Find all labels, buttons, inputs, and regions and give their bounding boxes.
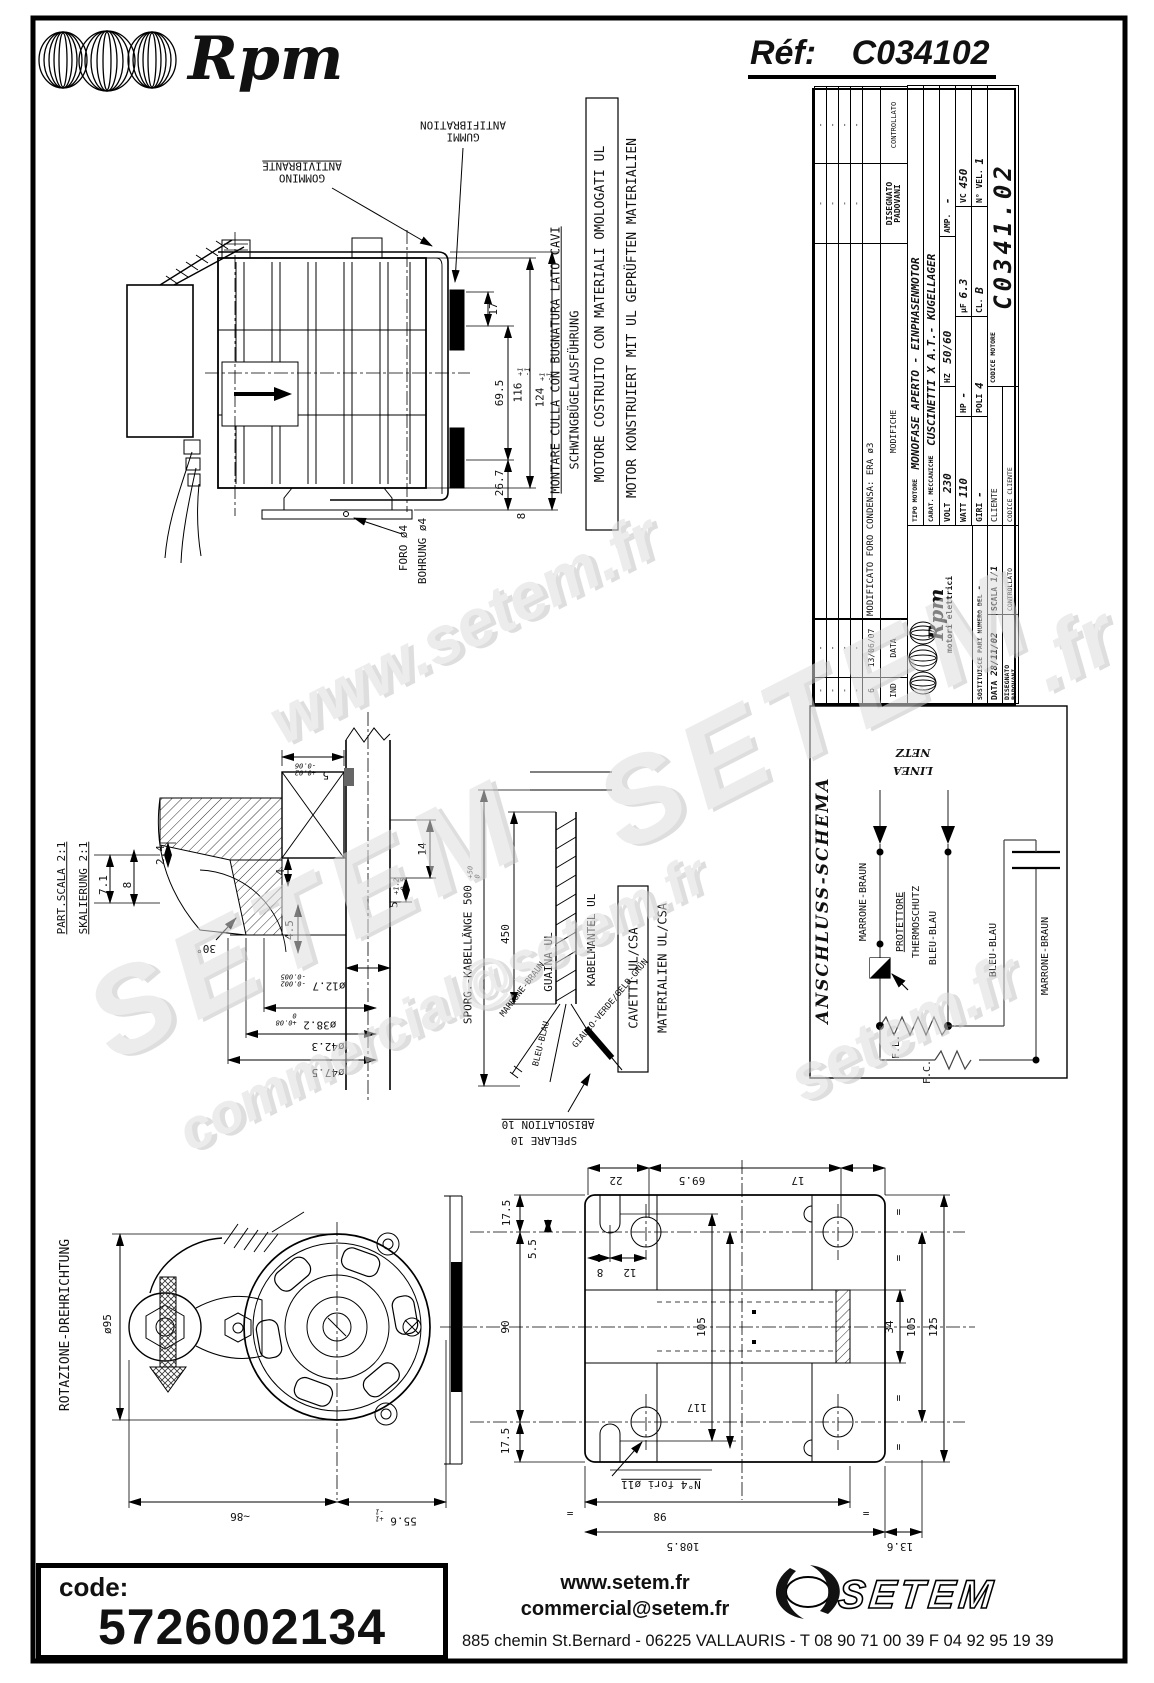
amp-value: -: [942, 197, 953, 204]
fl-label: F.L.: [892, 1035, 903, 1059]
hp-value: -: [958, 392, 969, 399]
dim-105-left: 105: [696, 1317, 708, 1337]
dim-7-1: 7.1: [98, 875, 110, 895]
netz-label: NETZ: [896, 746, 931, 758]
dim-12: 12: [623, 1266, 636, 1278]
dim-5-5: 5.5: [527, 1239, 539, 1259]
vc-label: VC: [960, 193, 968, 203]
setem-logo-text: SETEM: [836, 1573, 998, 1617]
col-data: DATA: [880, 618, 908, 678]
col-disegnato: DISEGNATOPADOVANI: [880, 163, 908, 244]
dim-2-4: 2.4: [155, 845, 167, 865]
fc-label: F.C.: [923, 1060, 934, 1084]
schwing-note: SCHWINGBÜGELAUSFÜHRUNG: [569, 311, 582, 470]
col-ind: IND: [880, 677, 908, 704]
mounting-plate-view: [440, 1160, 975, 1538]
dim-125: 125: [928, 1317, 940, 1337]
dim-98: 98: [653, 1510, 666, 1522]
rotation-direction-arrow: [160, 1277, 176, 1367]
dim-12-7: ø12.7 -0.002-0.005: [280, 973, 345, 992]
dim-117: 117: [687, 1401, 707, 1413]
dim-8b: 8: [122, 882, 134, 889]
tipo-value: MONOFASE APERTO - EINPHASENMOTOR: [910, 257, 921, 469]
vc-cell: VC 450: [955, 85, 972, 207]
foro-label: FORO ø4: [398, 525, 410, 571]
volt-cell: VOLT 230: [939, 386, 956, 526]
montare-note: MONTARE CULLA CON BUGNATURA LATO CAVI: [550, 226, 563, 493]
hz-cell: HZ 50/60: [939, 236, 956, 387]
rev-date: 13/06/07: [862, 618, 881, 678]
dim-17: 17: [488, 302, 500, 315]
nvel-label: N° VEL.: [976, 169, 984, 203]
skalierung-label: SKALIERUNG 2:1: [78, 842, 90, 935]
cl-cell: CL. B: [971, 206, 988, 317]
drawing-sheet: Rpm Réf: C034102 - - - - - - - - - - - -…: [0, 0, 1154, 1683]
vc-value: 450: [958, 169, 969, 189]
schema-bleu1: BLEU-BLAU: [929, 911, 940, 965]
equal-mark: =: [893, 1255, 905, 1262]
schema-marrone1: MARRONE-BRAUN: [859, 863, 870, 941]
dim-38-2: ø38.2 +0.080: [276, 1012, 337, 1031]
hz-value: 50/60: [942, 331, 953, 364]
dim-124: 124 +1-1: [535, 373, 554, 408]
disegnato-value2: PADOVANI: [1011, 669, 1018, 700]
tipo-label: TIPO MOTORE: [912, 479, 919, 522]
dim-4: 4: [275, 869, 287, 876]
rpm-subtitle: motori elettrici: [946, 576, 954, 653]
dim-116: 116 +1-1: [513, 368, 532, 403]
code-box: code: 5726002134: [36, 1563, 448, 1660]
equal-mark: =: [567, 1507, 574, 1519]
hp-label: HP: [960, 403, 968, 413]
dim-17b: 17: [791, 1174, 804, 1186]
dim-95: ø95: [102, 1314, 114, 1334]
sporg-label: SPORG.-KABELLÄNGE 500 +500: [463, 866, 482, 1024]
nvel-value: 1: [974, 158, 985, 165]
cl-label: CL.: [976, 299, 984, 313]
codice-motore-cell: CODICE MOTORE C0341.02: [987, 85, 1019, 387]
codice-cliente-cell: CODICE CLIENTE: [1002, 386, 1019, 526]
antivibrante-label: ANTIVIBRANTE: [262, 160, 341, 172]
nvel-cell: N° VEL. 1: [971, 85, 988, 207]
dim-5b: 5 +1.2-0.5: [389, 878, 408, 908]
watt-cell: WATT 110: [955, 416, 972, 526]
col-modifiche: MODIFICHE: [880, 243, 908, 620]
front-view: [112, 1212, 446, 1508]
dim-69-5b: 69.5: [679, 1174, 706, 1186]
rpm-block: Rpm motori elettrici: [907, 525, 973, 704]
sostituisce-value: -: [976, 585, 985, 590]
data-cell: DATA 28/11/02: [987, 614, 1003, 704]
dim-17-5-top: 17.5: [501, 1200, 513, 1227]
main-winding-fl: [880, 1017, 948, 1035]
uf-value: 6.3: [958, 279, 969, 299]
data-value: 28/11/02: [991, 633, 1000, 676]
equal-mark: =: [893, 1444, 905, 1451]
dim-8c: 8: [597, 1266, 604, 1278]
volt-label: VOLT: [944, 503, 952, 522]
ref-label: Réf:: [750, 34, 816, 72]
footer-email: commercial@setem.fr: [510, 1598, 740, 1621]
guaina-label: GUAINA UL: [543, 932, 555, 992]
carat-row: CARAT. MECCANICHE CUSCINETTI X A.T.- KUG…: [923, 85, 940, 526]
protettore-label: PROTETTORE: [896, 892, 907, 952]
col-controllato: CONTROLLATO: [880, 86, 908, 164]
antifibration-label: ANTIFIBRATION: [420, 119, 506, 131]
uf-label: µF: [960, 303, 968, 313]
disegnato-cell: DISEGNATOPADOVANI: [1002, 614, 1019, 704]
tipo-motore-row: TIPO MOTORE MONOFASE APERTO - EINPHASENM…: [907, 85, 924, 526]
gommino-label: GOMMINO: [262, 172, 341, 184]
dim-105-right: 105: [906, 1317, 918, 1337]
amp-label: AMP.: [944, 214, 952, 233]
rpm-logo-text: Rpm: [188, 24, 343, 94]
rpm-logo-coils: [39, 31, 176, 91]
watt-value: 110: [958, 478, 969, 498]
ul-note-line2: MOTOR KONSTRUIERT MIT UL GEPRÜFTEN MATER…: [626, 138, 640, 498]
dim-30deg: 30°: [196, 942, 216, 954]
part-scala-label: PART.SCALA 2:1: [56, 842, 68, 935]
equal-mark: =: [863, 1507, 870, 1519]
rotazione-label: ROTAZIONE-DREHRICHTUNG: [59, 1239, 73, 1411]
codice-motore-label: CODICE MOTORE: [990, 332, 997, 383]
dim-450: 450: [500, 924, 512, 944]
dim-5a: 5 +0.02-0.06: [295, 762, 329, 781]
gummi-note: GUMMI ANTIFIBRATION: [420, 119, 506, 142]
title-block: - - - - - - - - - - - - - - - - 6 13/06/…: [812, 88, 1016, 706]
poli-value: 4: [974, 382, 985, 389]
carat-value: CUSCINETTI X A.T.- KUGELLAGER: [926, 254, 937, 446]
ul-note-line1: MOTORE COSTRUITO CON MATERIALI OMOLOGATI…: [594, 146, 608, 483]
uf-cell: µF 6.3: [955, 206, 972, 317]
sostituisce-row: SOSTITUISCE PARI NUMERO DEL -: [972, 525, 988, 704]
poli-label: POLI: [976, 394, 984, 413]
volt-value: 230: [942, 473, 953, 493]
dim-42-3: ø42.3: [311, 1040, 344, 1052]
scala-value: 1/1: [991, 566, 1000, 582]
scala-label: SCALA: [991, 587, 999, 611]
fori-note: N°4 fori ø11: [621, 1478, 700, 1490]
dim-14: 14: [417, 842, 429, 855]
reference-number: Réf: C034102: [748, 34, 996, 79]
materialien-label: MATERIALIEN UL/CSA: [657, 903, 670, 1033]
dim-55-6: 55.6 +1-1: [375, 1508, 417, 1527]
sostituisce-label: SOSTITUISCE PARI NUMERO DEL: [977, 594, 984, 700]
disegnato-value: PADOVANI: [894, 184, 902, 223]
rpm-logo-coils-small: [908, 613, 938, 703]
dim-13-6: 13.6: [887, 1540, 914, 1552]
giri-cell: GIRI -: [971, 416, 988, 526]
giri-value: -: [974, 491, 985, 498]
dim-34: 34: [884, 1320, 896, 1333]
equal-mark: =: [893, 1209, 905, 1216]
dim-8: 8: [516, 513, 528, 520]
capacitor-symbol: [1012, 852, 1060, 868]
footer-website: www.setem.fr: [530, 1572, 720, 1595]
rev-ind: 6: [862, 677, 881, 704]
abisolation-label: ABISOLATION 10: [502, 1118, 595, 1130]
dim-69-5: 69.5: [494, 380, 506, 407]
line-arrow-icon: [941, 826, 955, 844]
dim-4-5: 4.5: [284, 920, 296, 940]
amp-cell: AMP. -: [939, 85, 956, 237]
schema-marrone2: MARRONE-BRAUN: [1041, 917, 1052, 995]
equal-mark: =: [893, 1395, 905, 1402]
thermoschutz-label: THERMOSCHUTZ: [912, 886, 923, 958]
rubber-pad-bottom: [450, 428, 464, 488]
dim-26-7: 26.7: [494, 470, 506, 497]
main-side-view: [127, 98, 618, 563]
gommino-note: GOMMINO ANTIVIBRANTE: [262, 160, 341, 183]
code-value: 5726002134: [41, 1598, 443, 1656]
giri-label: GIRI: [976, 503, 984, 522]
dim-17-5-bottom: 17.5: [500, 1428, 512, 1455]
spelare-label: SPELARE 10: [511, 1134, 577, 1146]
rev-text: MODIFICATO FORO CONDENSA: ERA ø3: [862, 243, 881, 620]
bohrung-label: BOHRUNG ø4: [417, 518, 429, 584]
poli-cell: POLI 4: [971, 316, 988, 417]
hz-label: HZ: [944, 373, 952, 383]
rev-cell: [862, 86, 881, 164]
linea-label: LINEA: [893, 764, 933, 776]
gummi-label: GUMMI: [420, 131, 506, 143]
ref-value: C034102: [852, 34, 990, 72]
hp-cell: HP -: [955, 316, 972, 417]
line-arrow-icon: [873, 826, 887, 844]
setem-logo: SETEM: [770, 1562, 1050, 1626]
rubber-pad-top: [450, 290, 464, 350]
schema-title: ANSCHLUSS-SCHEMA: [815, 776, 833, 1023]
kabelmantel-label: KABELMANTEL UL: [586, 894, 598, 987]
dim-90: 90: [500, 1320, 512, 1333]
dim-108-5: 108.5: [666, 1540, 699, 1552]
data-label: DATA: [991, 681, 999, 700]
dim-22: 22: [609, 1174, 622, 1186]
scala-cell: SCALA 1/1: [987, 525, 1003, 615]
shaft-detail-view: [94, 712, 436, 1100]
controllato-cell: CONTROLLATO: [1002, 525, 1019, 615]
cl-value: B: [974, 287, 985, 294]
connection-schema: [810, 706, 1067, 1078]
dim-86: ~86: [230, 1510, 250, 1522]
cliente-cell: CLIENTE: [987, 386, 1003, 526]
codice-motore-value: C0341.02: [991, 162, 1015, 310]
aux-winding-fc: [935, 1051, 971, 1069]
schema-bleu2: BLEU-BLAU: [989, 923, 1000, 977]
rev-cell: [862, 163, 881, 244]
carat-label: CARAT. MECCANICHE: [928, 455, 935, 522]
footer-address: 885 chemin St.Bernard - 06225 VALLAURIS …: [462, 1632, 1054, 1651]
dim-47-5: ø47.5: [311, 1066, 344, 1078]
watt-label: WATT: [960, 503, 968, 522]
